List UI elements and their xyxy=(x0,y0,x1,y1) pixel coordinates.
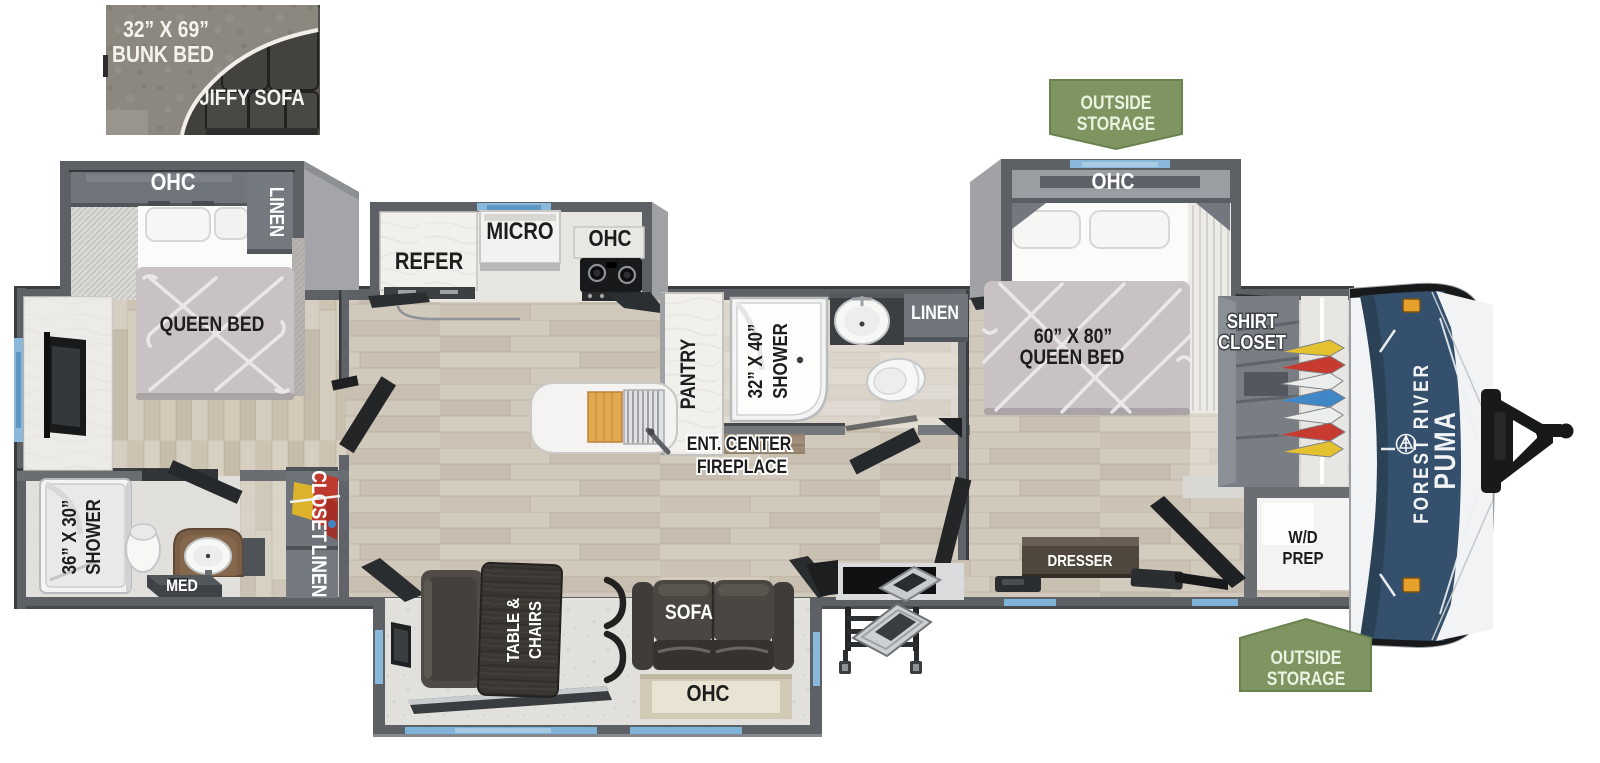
svg-text:ENT. CENTER: ENT. CENTER xyxy=(687,433,792,455)
svg-text:OUTSIDE: OUTSIDE xyxy=(1081,92,1152,114)
svg-text:QUEEN BED: QUEEN BED xyxy=(1020,346,1125,370)
svg-text:PUMA: PUMA xyxy=(1428,411,1462,490)
svg-text:OHC: OHC xyxy=(1092,170,1135,195)
svg-text:32” X 69”: 32” X 69” xyxy=(123,18,209,43)
svg-text:CHAIRS: CHAIRS xyxy=(525,601,546,659)
svg-text:FIREPLACE: FIREPLACE xyxy=(697,456,788,478)
svg-text:PANTRY: PANTRY xyxy=(677,339,701,410)
svg-text:MED: MED xyxy=(166,577,198,595)
svg-text:SHIRT: SHIRT xyxy=(1227,310,1278,333)
svg-text:SHOWER: SHOWER xyxy=(769,323,792,399)
svg-text:LINEN: LINEN xyxy=(911,302,959,324)
svg-text:STORAGE: STORAGE xyxy=(1077,113,1156,135)
svg-text:OUTSIDE: OUTSIDE xyxy=(1271,647,1342,669)
svg-text:OHC: OHC xyxy=(687,682,730,707)
svg-text:LINEN: LINEN xyxy=(266,187,289,237)
svg-text:JIFFY SOFA: JIFFY SOFA xyxy=(199,87,305,111)
svg-text:MICRO: MICRO xyxy=(486,217,553,244)
svg-text:REFER: REFER xyxy=(395,247,463,274)
svg-text:CLOSET: CLOSET xyxy=(1218,331,1287,354)
svg-text:PREP: PREP xyxy=(1282,548,1323,569)
svg-text:CLOSET: CLOSET xyxy=(307,470,331,542)
svg-text:OHC: OHC xyxy=(589,227,632,252)
svg-text:DRESSER: DRESSER xyxy=(1048,553,1113,570)
svg-text:TABLE &: TABLE & xyxy=(503,598,524,662)
svg-text:SOFA: SOFA xyxy=(665,601,713,625)
svg-text:36” X 30”: 36” X 30” xyxy=(58,500,81,575)
svg-text:LINEN: LINEN xyxy=(307,545,331,598)
svg-text:OHC: OHC xyxy=(151,168,196,195)
svg-text:STORAGE: STORAGE xyxy=(1267,668,1346,690)
svg-text:QUEEN BED: QUEEN BED xyxy=(160,313,265,337)
svg-text:SHOWER: SHOWER xyxy=(82,499,105,575)
svg-text:BUNK BED: BUNK BED xyxy=(112,43,214,68)
svg-text:W/D: W/D xyxy=(1288,527,1317,548)
svg-text:32” X 40”: 32” X 40” xyxy=(744,324,767,399)
